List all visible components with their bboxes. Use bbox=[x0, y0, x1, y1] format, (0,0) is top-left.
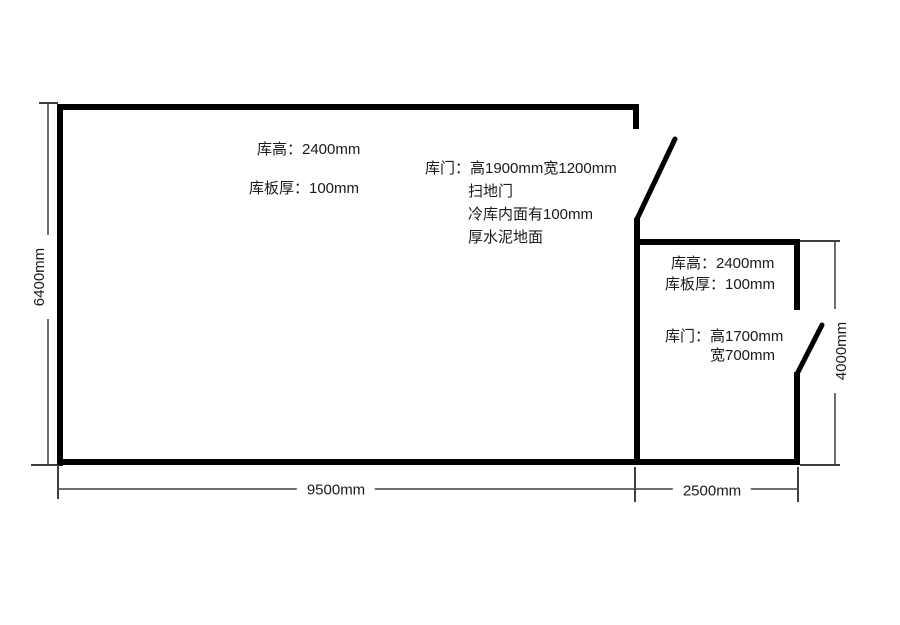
small-room-width-dimension: 2500mm bbox=[673, 483, 751, 500]
large-room-door-note-line1: 库门：高1900mm宽1200mm bbox=[425, 160, 617, 178]
small-room-door-note-line1: 库门：高1700mm bbox=[665, 328, 783, 346]
bottom-wall bbox=[57, 459, 800, 465]
large-room-width-dimension: 9500mm bbox=[297, 482, 375, 499]
right-dimension-top-tick bbox=[800, 240, 840, 242]
bottom-dimension-left-tick bbox=[57, 465, 59, 499]
partition-wall bbox=[634, 218, 640, 465]
large-room-height-note: 库高：2400mm bbox=[257, 141, 360, 159]
small-room-right-wall-lower bbox=[794, 372, 800, 465]
small-room-height-dimension: 4000mm bbox=[832, 309, 852, 393]
left-dimension-top-tick bbox=[39, 102, 58, 104]
small-room-door-leaf bbox=[797, 325, 822, 374]
small-room-right-wall-upper bbox=[794, 239, 800, 310]
door-leaves bbox=[0, 0, 900, 625]
small-room-panel-thickness-note: 库板厚：100mm bbox=[665, 276, 775, 294]
small-room-top-wall bbox=[634, 239, 800, 245]
small-room-door-note-line2: 宽700mm bbox=[710, 347, 775, 365]
large-room-door-note-line3: 冷库内面有100mm bbox=[468, 206, 593, 224]
left-dimension-bottom-tick bbox=[31, 464, 57, 466]
large-room-door-jamb bbox=[633, 104, 639, 129]
large-room-top-wall bbox=[57, 104, 639, 110]
large-room-panel-thickness-note: 库板厚：100mm bbox=[249, 180, 359, 198]
bottom-dimension-right-tick bbox=[797, 467, 799, 502]
large-room-door-note-line4: 厚水泥地面 bbox=[468, 229, 543, 247]
right-dimension-bottom-tick bbox=[800, 464, 840, 466]
large-room-left-wall bbox=[57, 104, 63, 466]
small-room-height-note: 库高：2400mm bbox=[671, 255, 774, 273]
large-room-door-leaf bbox=[637, 139, 675, 219]
bottom-dimension-middle-tick bbox=[634, 467, 636, 502]
large-room-door-note-line2: 扫地门 bbox=[468, 183, 513, 201]
cold-storage-floorplan: 6400mm 9500mm 2500mm 4000mm 库高：2400mm 库板… bbox=[0, 0, 900, 625]
large-room-height-dimension: 6400mm bbox=[30, 235, 50, 319]
